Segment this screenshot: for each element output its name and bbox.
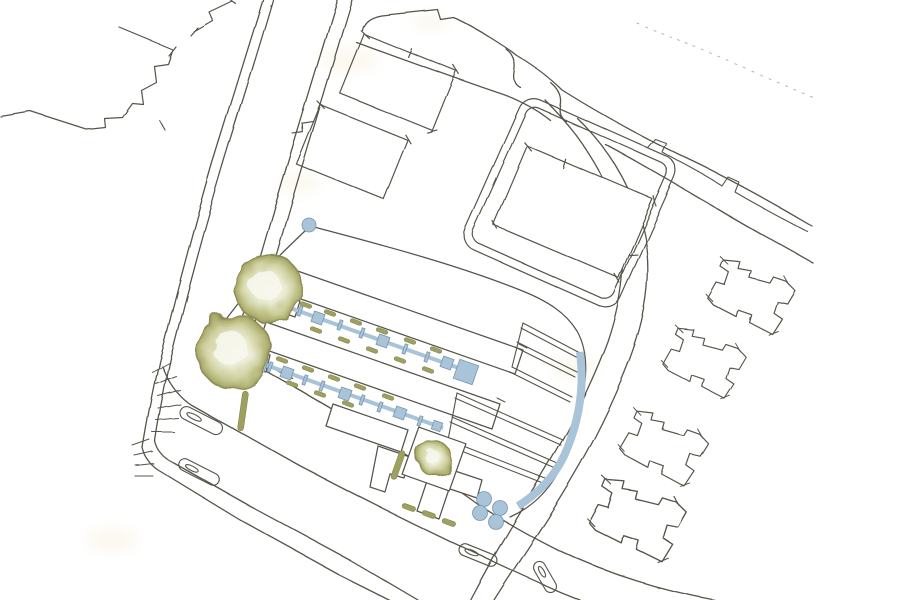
wash-blotch xyxy=(86,528,138,552)
terrace-outline xyxy=(0,28,176,130)
blue-entry-dot xyxy=(302,218,316,232)
wash-blotch xyxy=(322,47,378,73)
building-in-plot xyxy=(488,142,661,285)
wash-blotch xyxy=(280,173,320,193)
traffic-island xyxy=(177,457,222,488)
driveway-flare xyxy=(506,49,521,88)
wash-blotch xyxy=(412,14,448,30)
tree-highlight xyxy=(425,449,439,463)
terrace-outlines-northwest xyxy=(0,0,236,130)
traffic-island xyxy=(178,404,225,436)
faded-boundary-dotted xyxy=(636,22,815,98)
site-plan-sketch: Hand-drawn architectural site plan sketc… xyxy=(0,0,900,600)
road-edge xyxy=(143,448,390,600)
house-footprint xyxy=(700,251,799,338)
hedge-strip xyxy=(237,391,249,431)
road-edge-south xyxy=(356,42,550,120)
junction-kerb-fan xyxy=(152,362,180,432)
driveway-flare xyxy=(551,83,566,121)
neighbor-houses-east xyxy=(580,251,799,566)
hedge-line-stepped xyxy=(648,139,808,232)
boundary-east xyxy=(510,381,585,517)
path-terminal-square xyxy=(453,359,479,385)
blue-path-features xyxy=(252,218,582,530)
terrace-outline xyxy=(191,0,236,36)
corner-arc xyxy=(362,15,381,30)
tree-highlight xyxy=(250,270,280,300)
south-wing xyxy=(326,404,482,519)
house-footprint xyxy=(656,319,750,402)
blue-circle-trees xyxy=(473,492,508,530)
building-top-center xyxy=(334,28,461,135)
tree-highlight xyxy=(213,331,247,365)
house-footprint xyxy=(612,401,711,489)
traffic-island xyxy=(457,542,499,568)
house-footprint xyxy=(580,469,690,566)
